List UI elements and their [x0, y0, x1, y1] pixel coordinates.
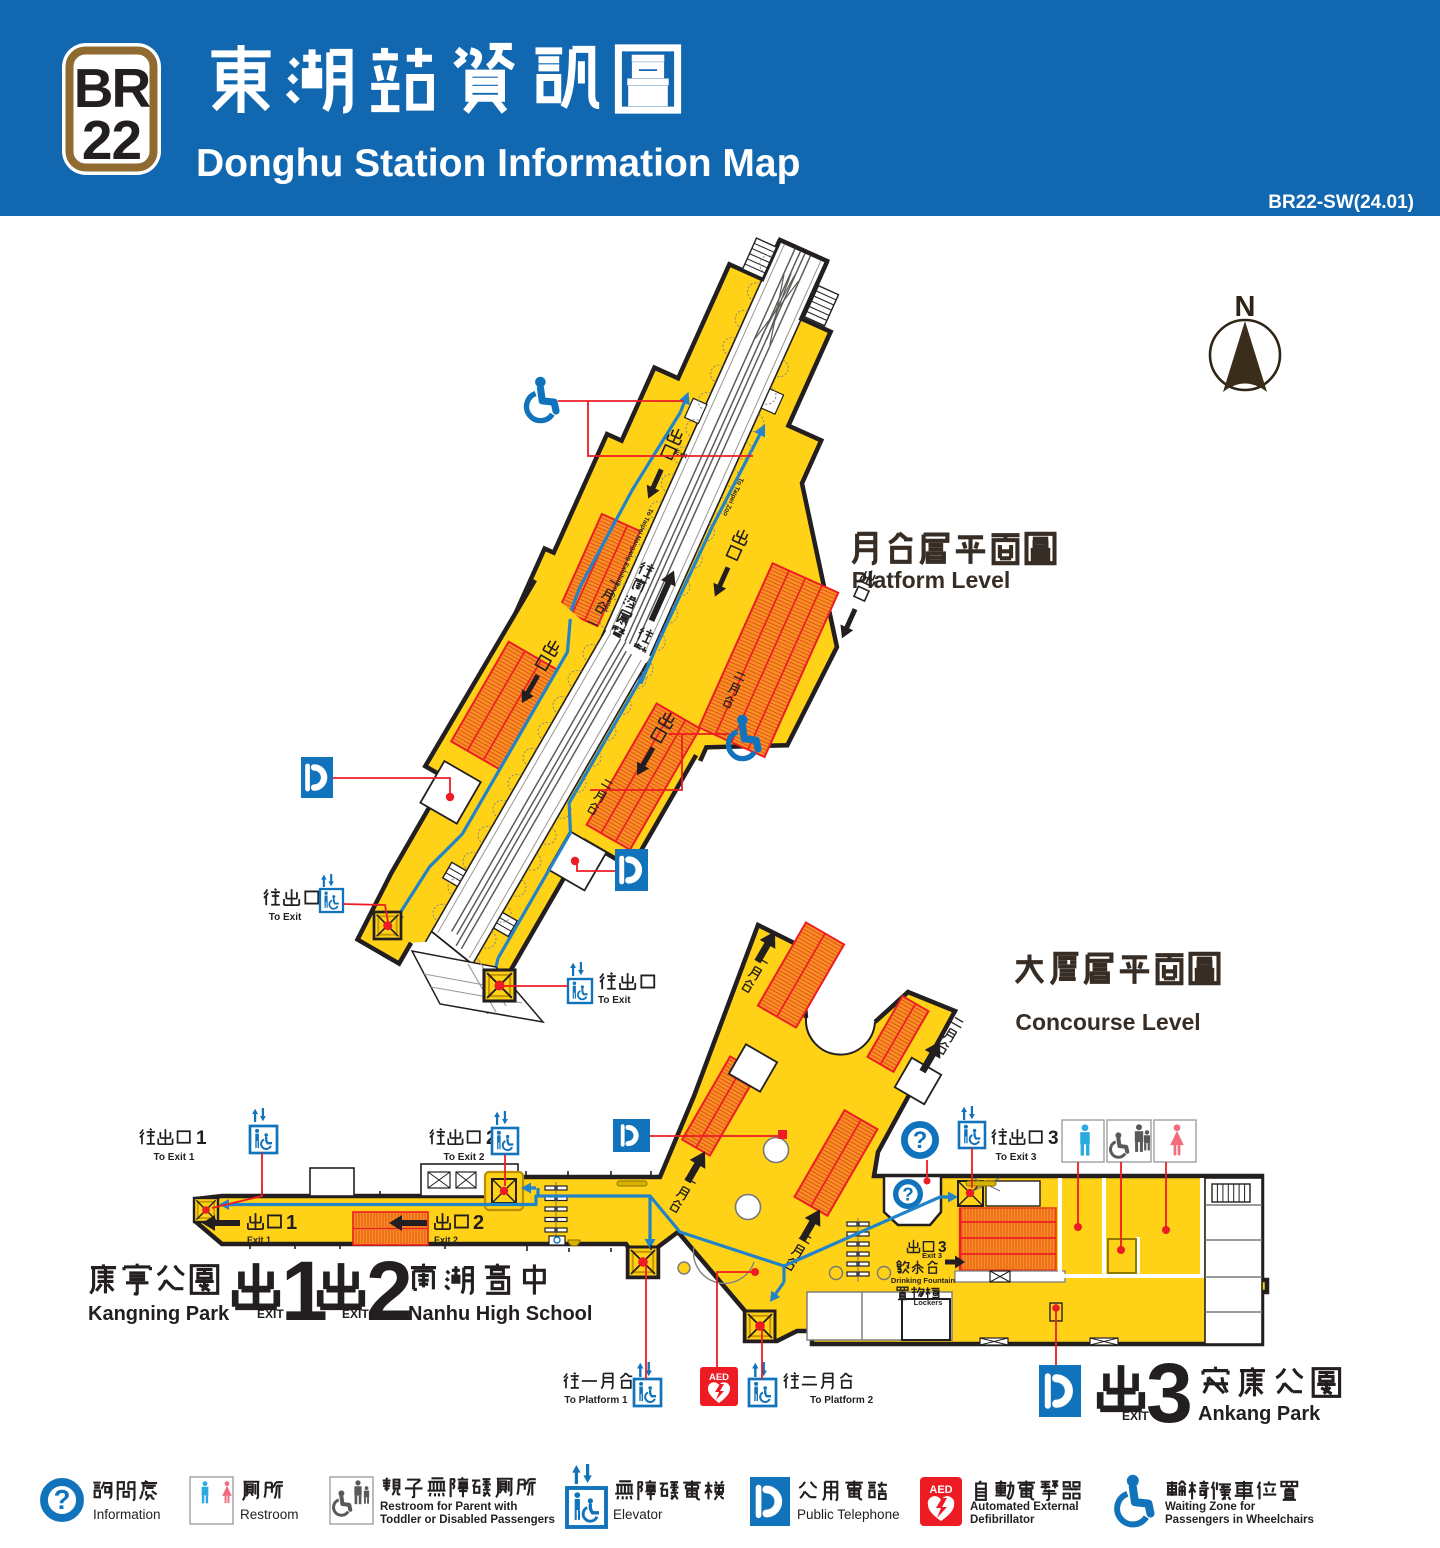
- svg-text:Exit 2: Exit 2: [434, 1235, 458, 1245]
- svg-text:Defibrillator: Defibrillator: [970, 1514, 1035, 1526]
- svg-text:Toddler or Disabled Passengers: Toddler or Disabled Passengers: [380, 1514, 555, 1526]
- svg-text:To Exit 2: To Exit 2: [444, 1152, 485, 1163]
- svg-text:Kangning Park: Kangning Park: [88, 1303, 230, 1325]
- svg-text:Exit 3: Exit 3: [922, 1251, 942, 1260]
- svg-text:Waiting Zone for: Waiting Zone for: [1165, 1501, 1256, 1513]
- svg-text:Passengers in Wheelchairs: Passengers in Wheelchairs: [1165, 1514, 1314, 1526]
- svg-text:To Platform 1: To Platform 1: [564, 1395, 628, 1406]
- svg-text:Exit 1: Exit 1: [247, 1235, 271, 1245]
- svg-text:2: 2: [473, 1212, 484, 1234]
- svg-text:To Exit: To Exit: [598, 995, 631, 1006]
- svg-text:3: 3: [1146, 1346, 1193, 1440]
- svg-text:3: 3: [1048, 1128, 1059, 1149]
- svg-text:AED: AED: [929, 1484, 952, 1496]
- svg-text:Lockers: Lockers: [914, 1298, 943, 1307]
- svg-text:Information: Information: [93, 1507, 161, 1522]
- svg-text:N: N: [1235, 291, 1256, 323]
- svg-text:To Platform 2: To Platform 2: [810, 1395, 874, 1406]
- svg-text:Ankang Park: Ankang Park: [1198, 1403, 1321, 1425]
- svg-text:AED: AED: [709, 1372, 729, 1383]
- svg-text:Public Telephone: Public Telephone: [797, 1507, 900, 1522]
- svg-text:Platform Level: Platform Level: [852, 567, 1011, 593]
- svg-text:1: 1: [196, 1128, 207, 1149]
- svg-text:Nanhu High School: Nanhu High School: [408, 1303, 592, 1325]
- svg-text:?: ?: [54, 1484, 71, 1515]
- svg-text:Concourse Level: Concourse Level: [1015, 1009, 1200, 1035]
- svg-text:Restroom for Parent with: Restroom for Parent with: [380, 1501, 517, 1513]
- svg-text:To Exit: To Exit: [269, 912, 302, 923]
- svg-text:?: ?: [902, 1183, 913, 1204]
- svg-text:To Exit 1: To Exit 1: [154, 1152, 195, 1163]
- svg-text:Elevator: Elevator: [613, 1507, 663, 1522]
- svg-text:To Exit 3: To Exit 3: [996, 1152, 1037, 1163]
- svg-text:2: 2: [366, 1244, 413, 1338]
- svg-text:Drinking Fountain: Drinking Fountain: [891, 1276, 956, 1285]
- svg-text:1: 1: [286, 1212, 297, 1234]
- svg-text:Automated External: Automated External: [970, 1501, 1079, 1513]
- svg-text:Restroom: Restroom: [240, 1507, 299, 1522]
- svg-text:?: ?: [913, 1127, 928, 1154]
